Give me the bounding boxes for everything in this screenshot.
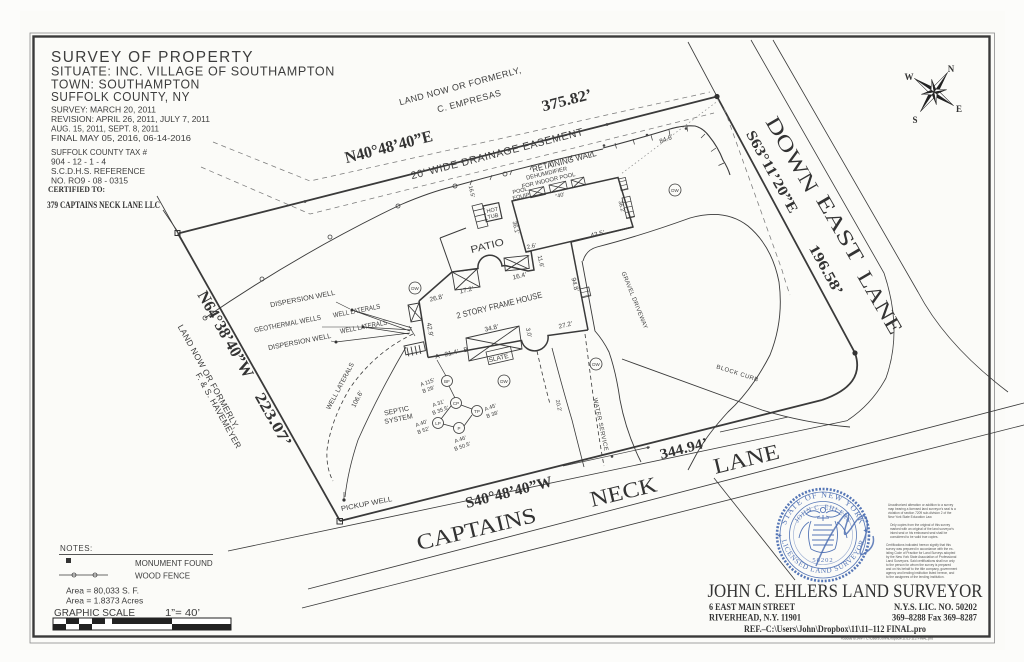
svg-text:1”= 40’: 1”= 40’ bbox=[165, 608, 200, 619]
svg-text:50202: 50202 bbox=[812, 557, 833, 564]
svg-text:E: E bbox=[956, 104, 962, 114]
svg-text:#56698 6/14/PT C:\Users\John: #56698 6/14/PT C:\Users\John\Dropbox\11\… bbox=[841, 637, 933, 641]
svg-text:S: S bbox=[912, 115, 917, 125]
svg-text:New York State Education Law.: New York State Education Law. bbox=[888, 515, 932, 519]
svg-text:LP: LP bbox=[435, 421, 441, 426]
svg-text:SURVEY: MARCH 20, 2011: SURVEY: MARCH 20, 2011 bbox=[51, 106, 156, 115]
svg-text:DW: DW bbox=[671, 188, 679, 193]
svg-text:W: W bbox=[905, 72, 914, 82]
svg-text:6 EAST MAIN STREET: 6 EAST MAIN STREET bbox=[709, 603, 796, 613]
svg-text:CP: CP bbox=[453, 401, 459, 406]
svg-text:N: N bbox=[948, 64, 955, 74]
svg-text:REF.–C:\Users\John\Dropbox\11\: REF.–C:\Users\John\Dropbox\11\11–112 FIN… bbox=[744, 624, 926, 634]
svg-text:DW: DW bbox=[592, 362, 600, 367]
svg-text:AUG. 15, 2011, SEPT. 8, 2011: AUG. 15, 2011, SEPT. 8, 2011 bbox=[51, 125, 159, 134]
svg-text:369–8288 Fax 369–8287: 369–8288 Fax 369–8287 bbox=[892, 614, 977, 624]
svg-text:WOOD FENCE: WOOD FENCE bbox=[135, 572, 190, 581]
svg-text:REVISION: APRIL 26, 2011, JULY: REVISION: APRIL 26, 2011, JULY 7, 2011 bbox=[51, 115, 210, 124]
svg-text:SITUATE: INC. VILLAGE OF SOUT: SITUATE: INC. VILLAGE OF SOUTHAMPTON bbox=[51, 65, 335, 79]
svg-text:904 - 12 - 1 - 4: 904 - 12 - 1 - 4 bbox=[51, 158, 107, 167]
svg-text:FINAL MAY 05, 2016, 06-14-2016: FINAL MAY 05, 2016, 06-14-2016 bbox=[51, 134, 191, 143]
svg-text:Area = 1.8373 Acres: Area = 1.8373 Acres bbox=[66, 596, 143, 606]
svg-text:SURVEY OF PROPERTY: SURVEY OF PROPERTY bbox=[51, 49, 254, 66]
svg-text:BF: BF bbox=[444, 379, 450, 384]
svg-text:DW: DW bbox=[411, 286, 419, 291]
svg-text:RIVERHEAD, N.Y. 11901: RIVERHEAD, N.Y. 11901 bbox=[709, 614, 801, 624]
svg-text:to the assignees of the lendin: to the assignees of the lending institut… bbox=[886, 575, 945, 579]
svg-text:379 CAPTAINS NECK LANE LLC: 379 CAPTAINS NECK LANE LLC bbox=[47, 201, 160, 211]
svg-text:Area = 80,033 S. F.: Area = 80,033 S. F. bbox=[66, 586, 139, 596]
svg-text:DW: DW bbox=[500, 379, 508, 384]
svg-text:considered to be valid true co: considered to be valid true copies. bbox=[890, 535, 938, 539]
svg-text:JOHN C. EHLERS LAND SURVEYOR: JOHN C. EHLERS LAND SURVEYOR bbox=[708, 582, 984, 602]
svg-text:CERTIFIED TO:: CERTIFIED TO: bbox=[48, 184, 105, 194]
svg-text:N.Y.S. LIC. NO. 50202: N.Y.S. LIC. NO. 50202 bbox=[894, 603, 977, 613]
svg-text:GRAPHIC SCALE: GRAPHIC SCALE bbox=[54, 608, 135, 619]
svg-text:SUFFOLK COUNTY TAX #: SUFFOLK COUNTY TAX # bbox=[51, 148, 148, 157]
svg-text:S.C.D.H.S. REFERENCE: S.C.D.H.S. REFERENCE bbox=[51, 167, 145, 176]
svg-text:MONUMENT FOUND: MONUMENT FOUND bbox=[135, 559, 213, 568]
svg-text:NOTES:: NOTES: bbox=[60, 544, 93, 553]
svg-text:✦: ✦ bbox=[777, 532, 784, 540]
svg-text:TP: TP bbox=[474, 409, 480, 414]
svg-text:P: P bbox=[457, 426, 460, 431]
svg-text:SUFFOLK COUNTY, NY: SUFFOLK COUNTY, NY bbox=[51, 90, 190, 104]
